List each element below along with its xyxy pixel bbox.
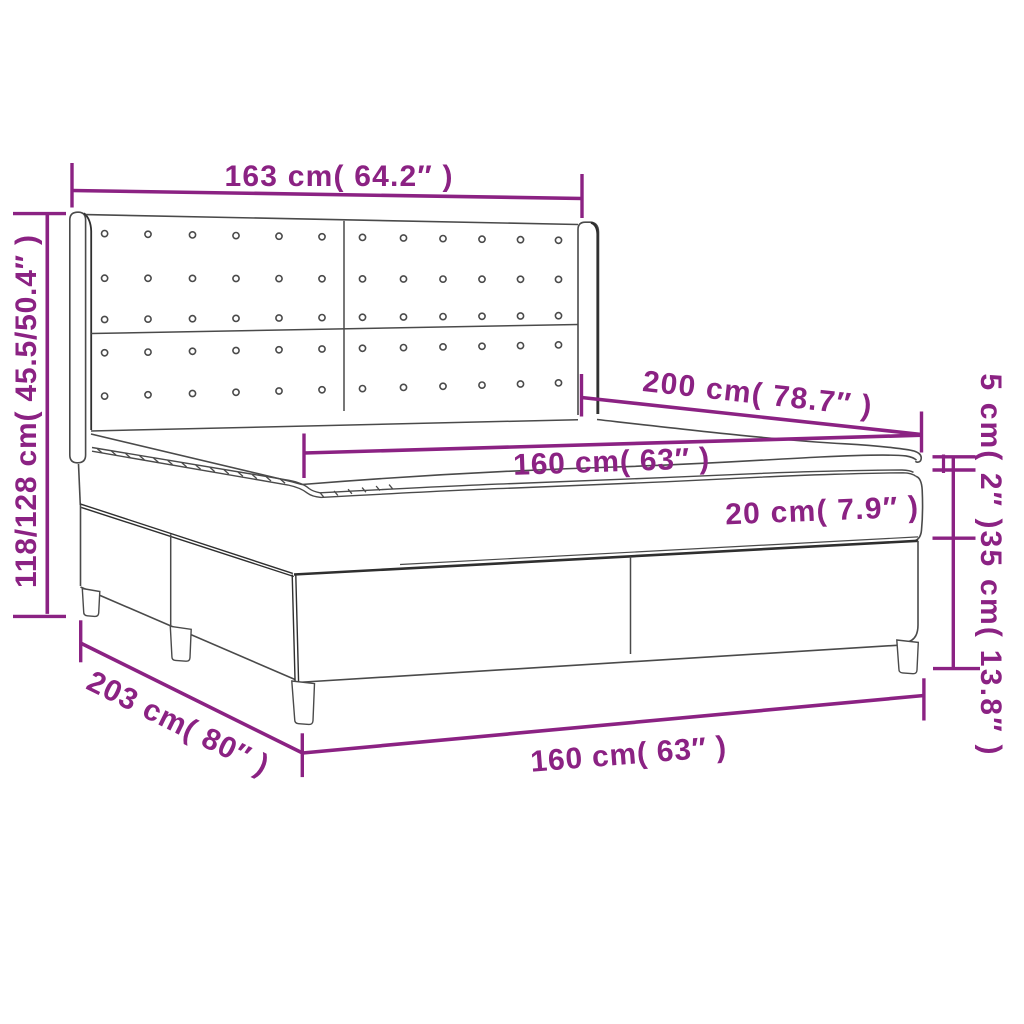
svg-text:35 cm( 13.8″ ): 35 cm( 13.8″ ) (974, 531, 1007, 755)
svg-text:163 cm( 64.2″ ): 163 cm( 64.2″ ) (225, 160, 453, 193)
svg-text:5 cm( 2″ ): 5 cm( 2″ ) (974, 374, 1007, 529)
svg-text:160 cm( 63″ ): 160 cm( 63″ ) (513, 442, 710, 482)
svg-text:118/128 cm( 45.5/50.4″ ): 118/128 cm( 45.5/50.4″ ) (10, 235, 43, 588)
